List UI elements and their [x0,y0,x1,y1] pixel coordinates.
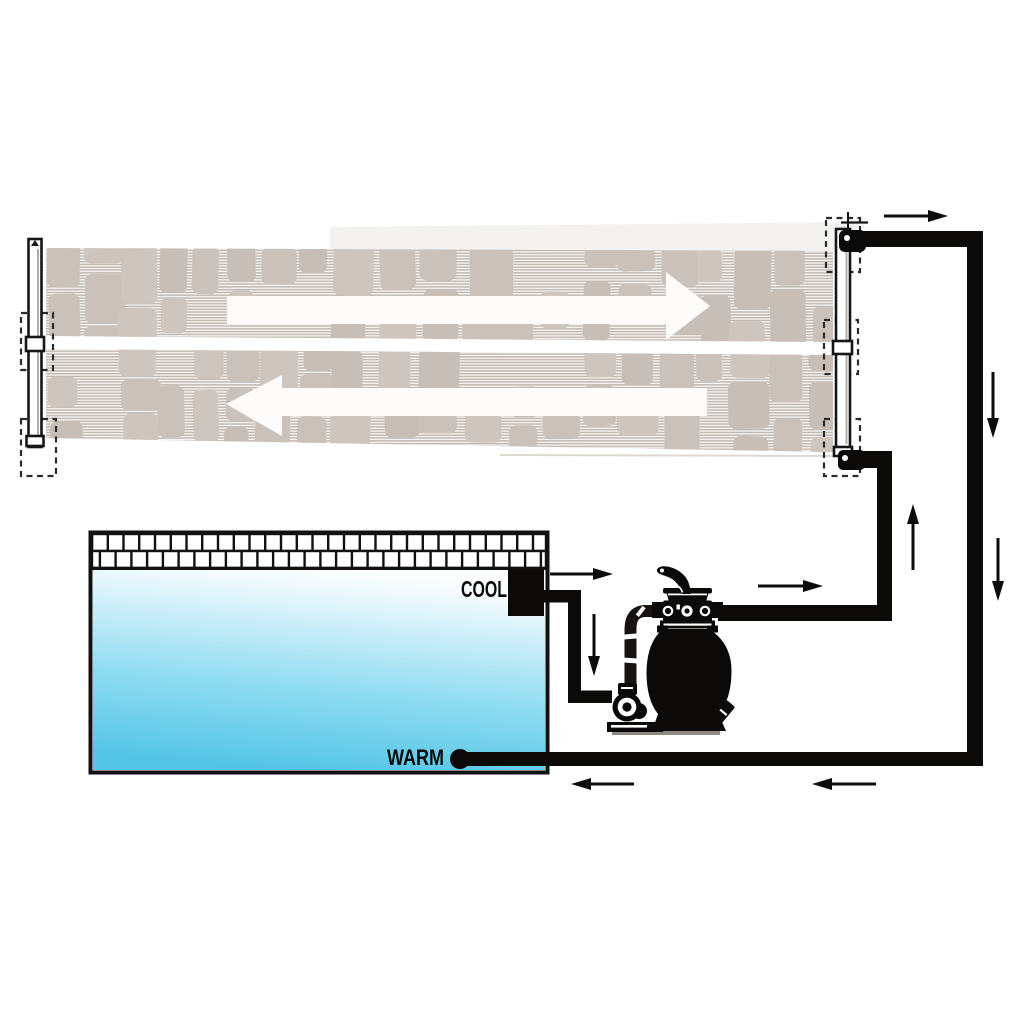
svg-text:COOL: COOL [461,576,507,602]
svg-text:WARM: WARM [387,745,444,770]
